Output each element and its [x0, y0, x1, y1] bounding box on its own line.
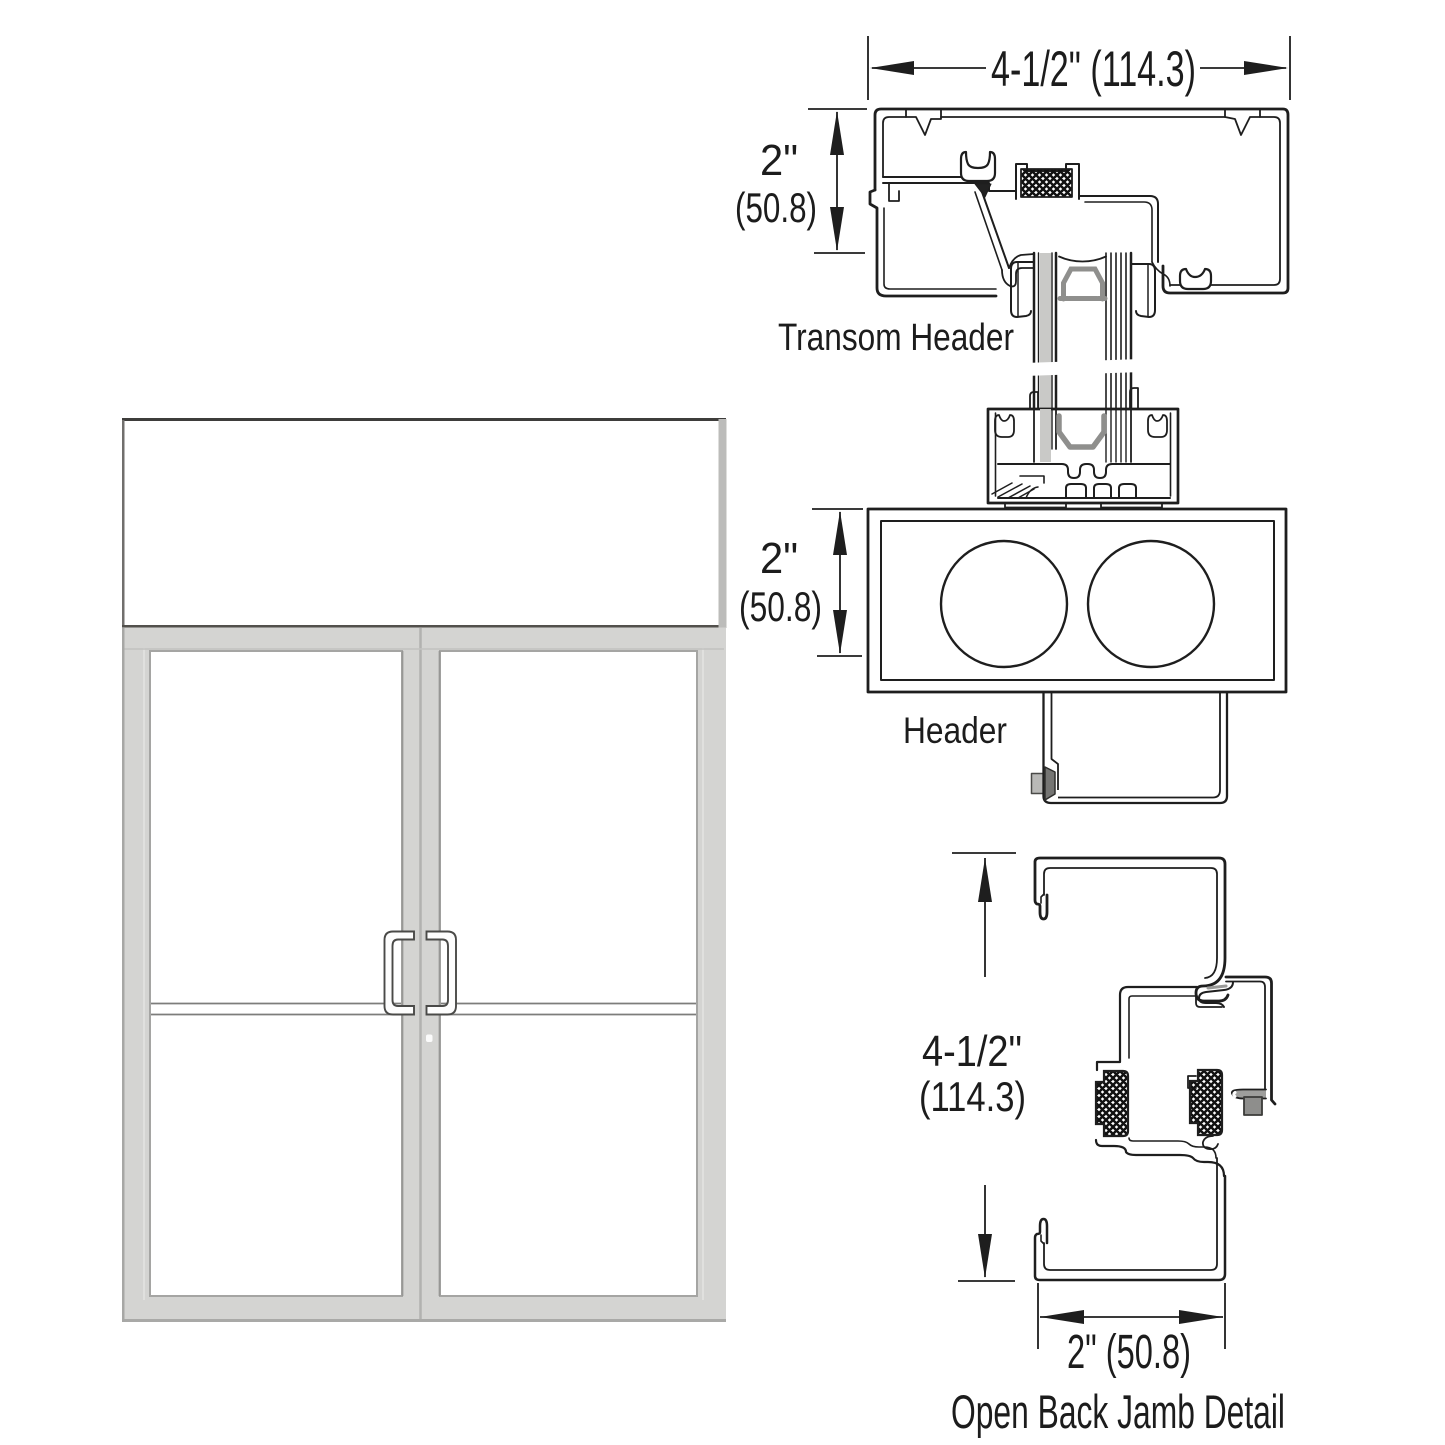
svg-text:Header: Header [903, 710, 1007, 751]
svg-text:4-1/2" (114.3): 4-1/2" (114.3) [991, 41, 1196, 97]
svg-text:Transom Header: Transom Header [778, 317, 1014, 359]
svg-text:(114.3): (114.3) [919, 1073, 1026, 1120]
svg-text:2": 2" [760, 534, 798, 583]
svg-text:2" (50.8): 2" (50.8) [1067, 1326, 1191, 1379]
svg-text:(50.8): (50.8) [739, 583, 822, 630]
svg-text:4-1/2": 4-1/2" [922, 1027, 1022, 1076]
svg-text:2": 2" [760, 136, 798, 185]
svg-text:(50.8): (50.8) [735, 184, 817, 231]
svg-text:Open Back Jamb Detail: Open Back Jamb Detail [951, 1385, 1285, 1438]
